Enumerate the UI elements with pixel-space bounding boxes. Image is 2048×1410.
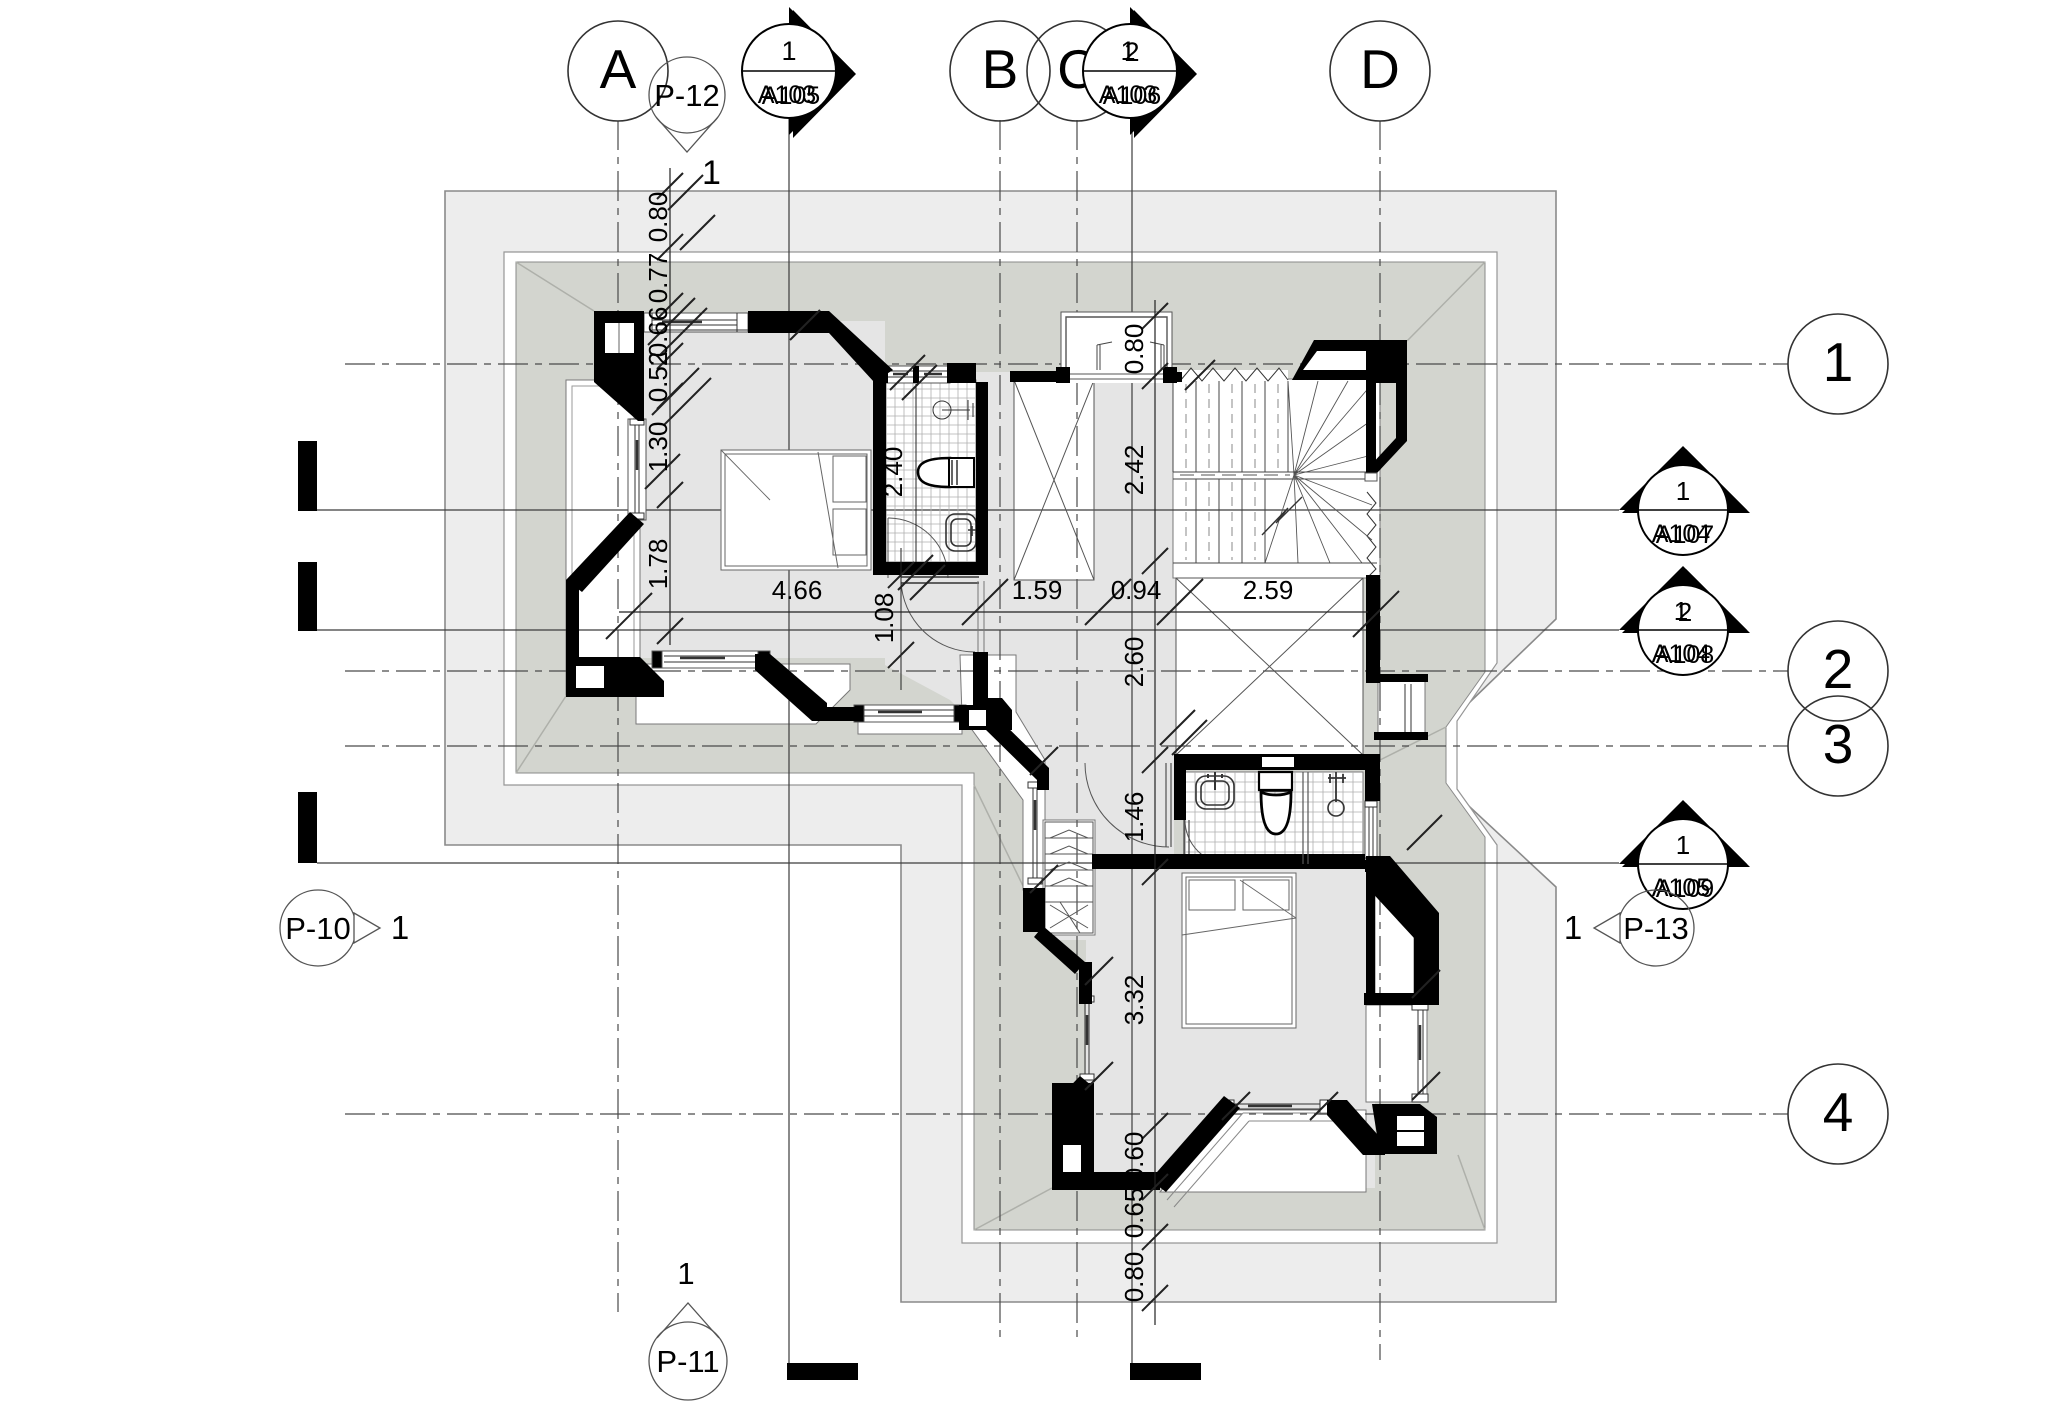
svg-text:D: D xyxy=(1360,38,1400,100)
svg-text:1.46: 1.46 xyxy=(1119,792,1149,843)
svg-text:1: 1 xyxy=(1676,830,1690,860)
svg-text:B: B xyxy=(982,38,1019,100)
svg-text:1.08: 1.08 xyxy=(869,593,899,644)
svg-text:P-13: P-13 xyxy=(1623,911,1688,946)
svg-text:A105: A105 xyxy=(762,82,820,110)
svg-text:2.42: 2.42 xyxy=(1119,445,1149,496)
svg-text:1: 1 xyxy=(677,1256,694,1291)
svg-text:0.94: 0.94 xyxy=(1111,575,1162,605)
svg-text:1: 1 xyxy=(1564,909,1582,946)
svg-text:0.80: 0.80 xyxy=(1119,324,1149,375)
svg-text:4.66: 4.66 xyxy=(772,575,823,605)
svg-text:P-11: P-11 xyxy=(656,1344,719,1379)
svg-text:0.80: 0.80 xyxy=(1119,1252,1149,1303)
svg-text:2.60: 2.60 xyxy=(1119,637,1149,688)
svg-text:P-12: P-12 xyxy=(654,78,719,113)
svg-text:0.52: 0.52 xyxy=(643,352,673,403)
svg-text:1: 1 xyxy=(781,36,796,66)
svg-text:3.32: 3.32 xyxy=(1119,975,1149,1026)
svg-text:1.59: 1.59 xyxy=(1012,575,1063,605)
svg-text:0.77: 0.77 xyxy=(643,253,673,304)
svg-text:1: 1 xyxy=(1676,476,1690,506)
svg-text:A107: A107 xyxy=(1656,521,1714,549)
svg-text:1.30: 1.30 xyxy=(643,422,673,473)
svg-text:2.40: 2.40 xyxy=(878,447,908,498)
svg-text:P-10: P-10 xyxy=(285,911,350,946)
svg-text:A109: A109 xyxy=(1656,875,1714,903)
svg-text:1: 1 xyxy=(391,909,409,946)
svg-text:0.60: 0.60 xyxy=(1119,1132,1149,1183)
svg-text:2: 2 xyxy=(1823,638,1854,700)
svg-text:A108: A108 xyxy=(1656,641,1714,669)
svg-text:2.59: 2.59 xyxy=(1243,575,1294,605)
svg-text:0.65: 0.65 xyxy=(1119,1188,1149,1239)
svg-text:2: 2 xyxy=(1124,37,1139,67)
svg-text:1.78: 1.78 xyxy=(643,539,673,590)
svg-text:0.80: 0.80 xyxy=(643,192,673,243)
svg-text:A: A xyxy=(600,38,637,100)
svg-text:2: 2 xyxy=(1678,597,1692,627)
svg-text:1: 1 xyxy=(702,154,721,192)
svg-text:4: 4 xyxy=(1823,1081,1854,1143)
svg-text:3: 3 xyxy=(1823,713,1854,775)
svg-text:1: 1 xyxy=(1823,331,1854,393)
svg-text:A106: A106 xyxy=(1103,82,1161,110)
svg-text:0.66: 0.66 xyxy=(643,307,673,358)
